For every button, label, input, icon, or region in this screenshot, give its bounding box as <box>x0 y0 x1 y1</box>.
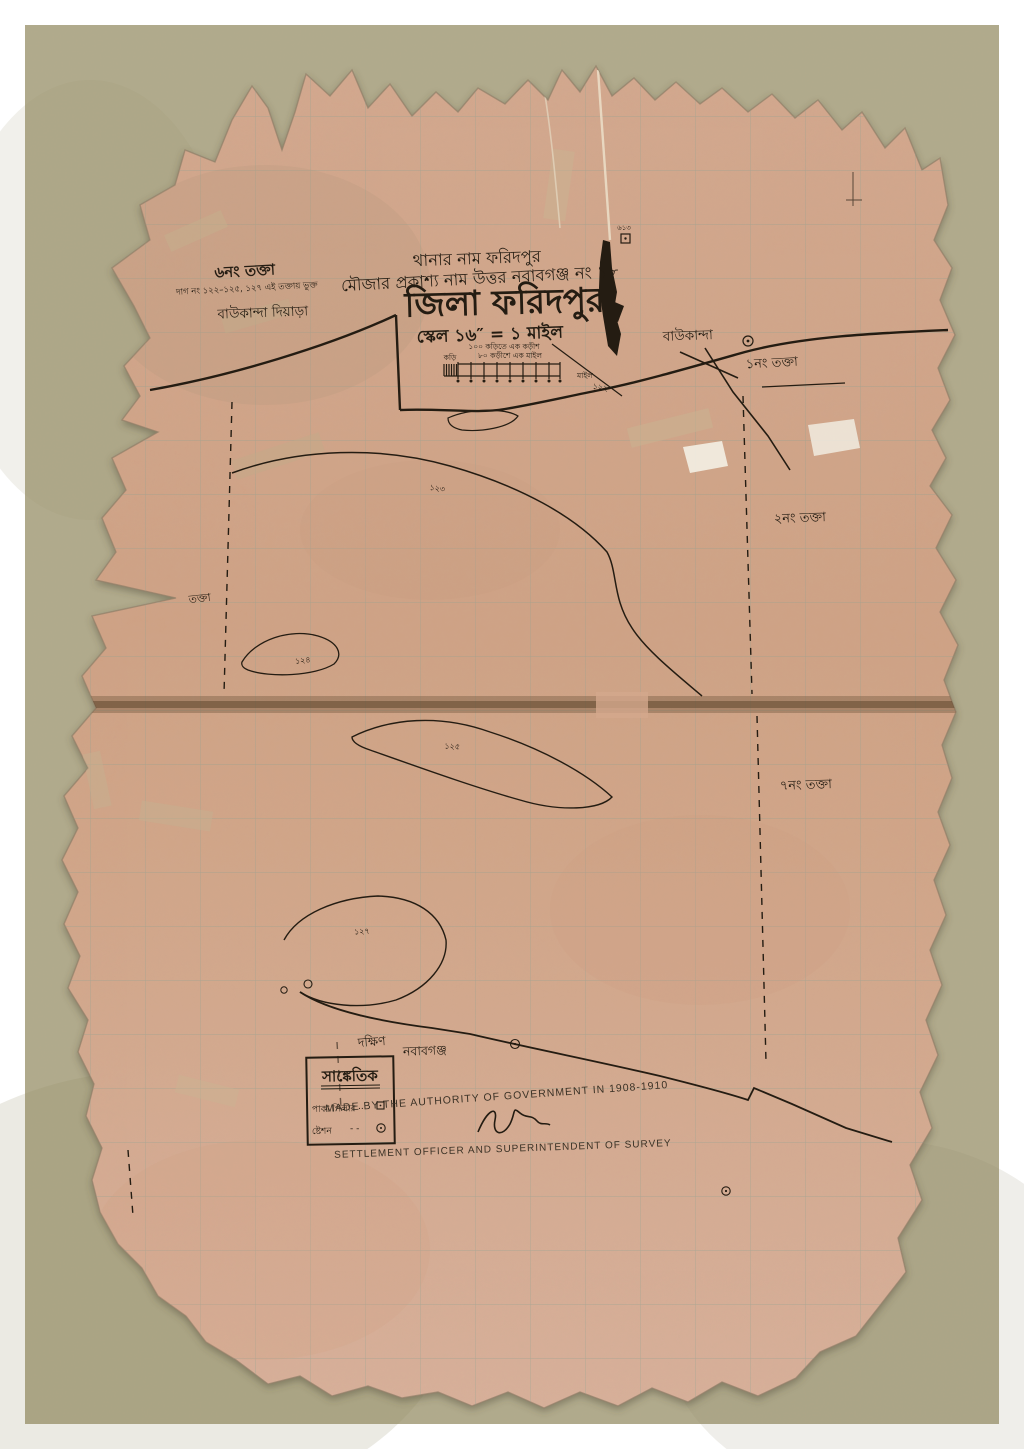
baukanda-diyara-label: বাউকান্দা দিয়াড়া <box>216 302 309 322</box>
scale-note-1: ১০০ কড়িতে এক কড়ীশ <box>468 341 540 351</box>
plot-125: ১২৫ <box>444 741 460 751</box>
station-number: ৬১৩ <box>617 224 631 232</box>
scale-note-2: ৮০ কড়ীশে এক মাইল <box>478 350 543 360</box>
legend-title: সাঙ্কেতিক <box>321 1066 379 1086</box>
map-canvas: থানার নাম ফরিদপুর মৌজার প্রকাশ্য নাম উত্… <box>0 0 1024 1449</box>
sheet7-label: ৭নং তক্তা <box>780 777 833 794</box>
baukanda-label: বাউকান্দা <box>662 326 715 345</box>
district-title: জিলা ফরিদপুর <box>403 279 606 326</box>
plot-124: ১২৪ <box>295 655 311 666</box>
sheet2-label: ২নং তক্তা <box>774 510 827 527</box>
legend-row2-dots: - - <box>350 1124 359 1134</box>
scanned-survey-map: থানার নাম ফরিদপুর মৌজার প্রকাশ্য নাম উত্… <box>0 0 1024 1449</box>
nababganj-label: নবাবগঞ্জ <box>402 1042 448 1059</box>
scale-right-label: মাইল <box>576 371 594 380</box>
sheet1-label: ১নং তক্তা <box>745 355 798 373</box>
legend-row2-label: ষ্টেশন <box>312 1126 333 1137</box>
dakshin-label: দক্ষিণ <box>356 1033 387 1050</box>
scale-left-label: কড়ি <box>443 353 457 362</box>
sheet-partial-label: তক্তা <box>187 591 212 606</box>
plot-127: ১২৭ <box>354 926 370 936</box>
sheet6-label: ৬নং তক্তা <box>214 260 276 281</box>
